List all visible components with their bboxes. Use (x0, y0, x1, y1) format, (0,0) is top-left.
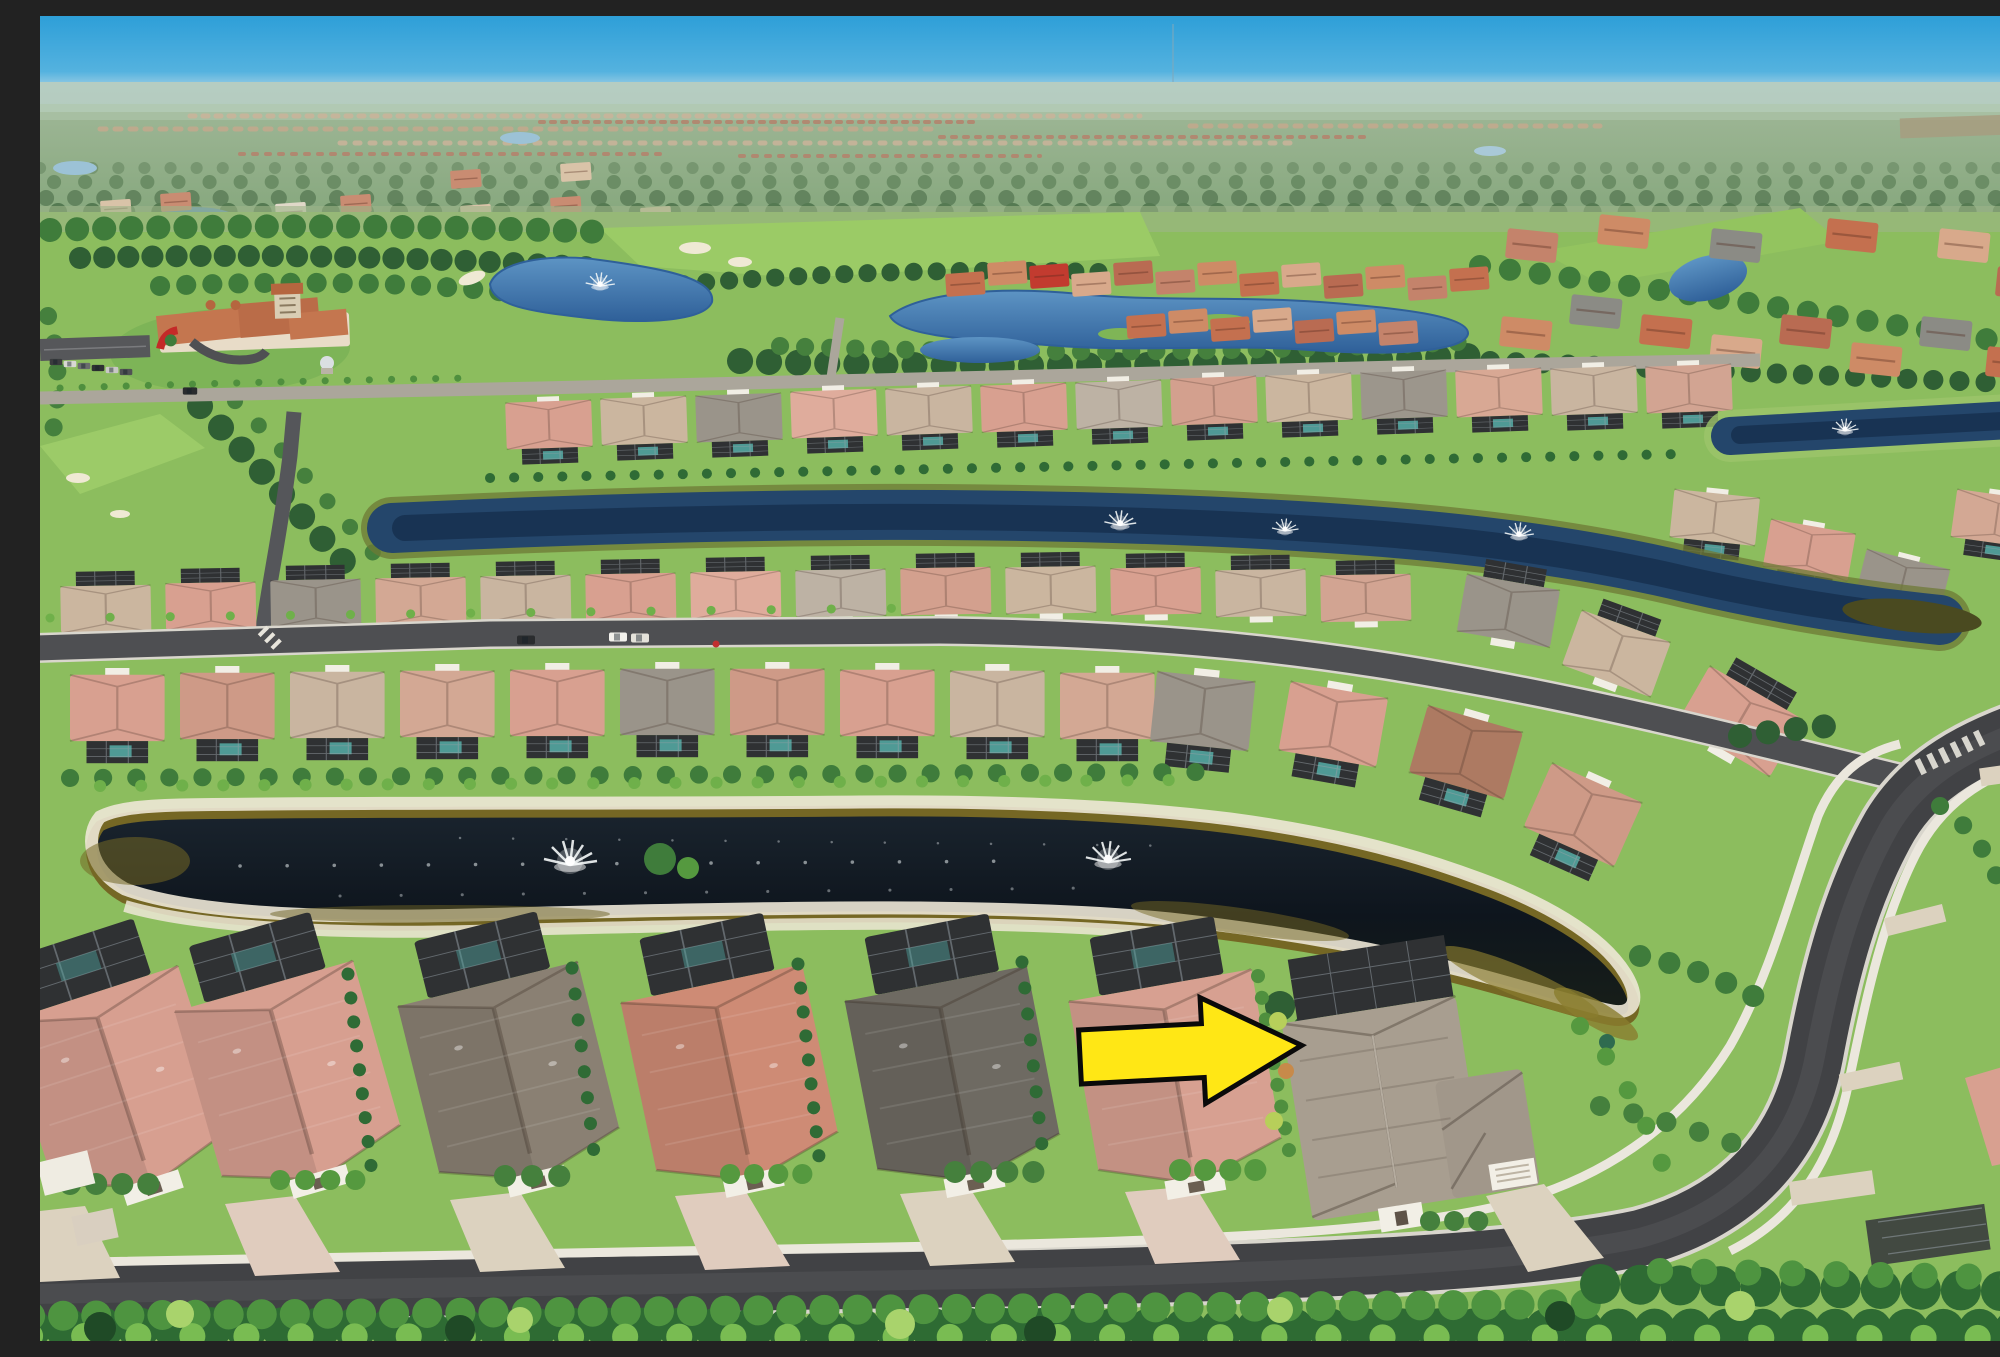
canal-upper-right (1730, 418, 2000, 436)
aerial-photo (40, 16, 2000, 1341)
scene-canvas (40, 16, 2000, 1341)
dome-building (320, 356, 334, 370)
pedestrian (713, 641, 720, 648)
sky (40, 16, 2000, 90)
